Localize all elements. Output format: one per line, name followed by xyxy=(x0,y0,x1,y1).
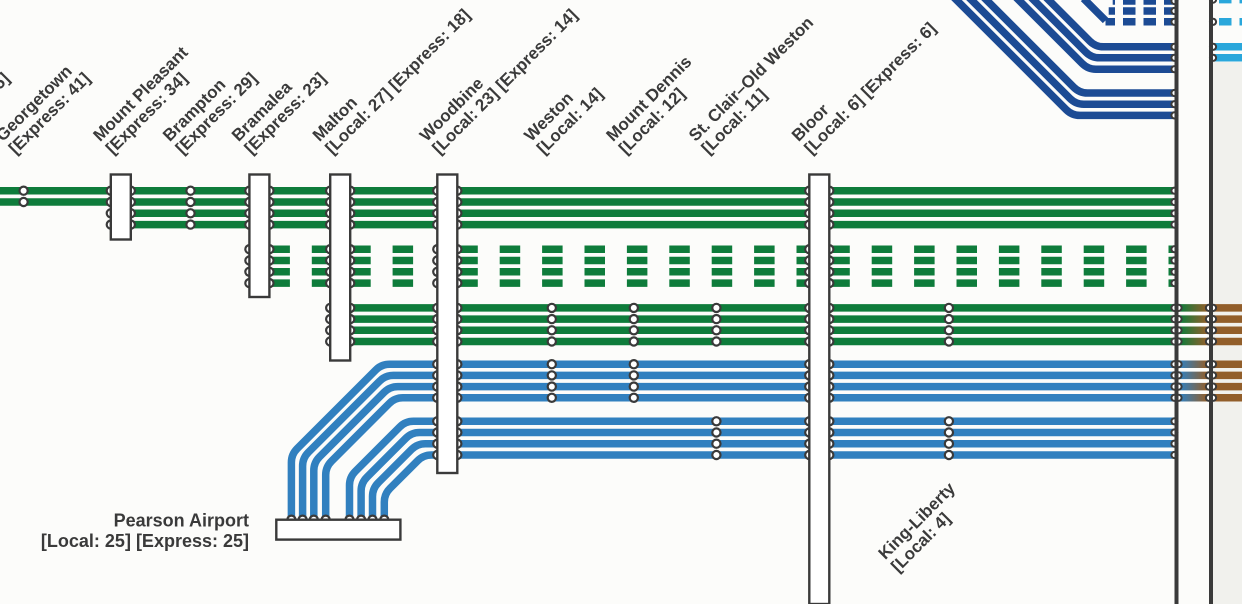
svg-text:[Local: 6] [Express: 6]: [Local: 6] [Express: 6] xyxy=(801,19,940,158)
svg-text:Pearson Airport: Pearson Airport xyxy=(114,511,249,531)
svg-text:[Local: 25] [Express: 25]: [Local: 25] [Express: 25] xyxy=(41,531,249,551)
